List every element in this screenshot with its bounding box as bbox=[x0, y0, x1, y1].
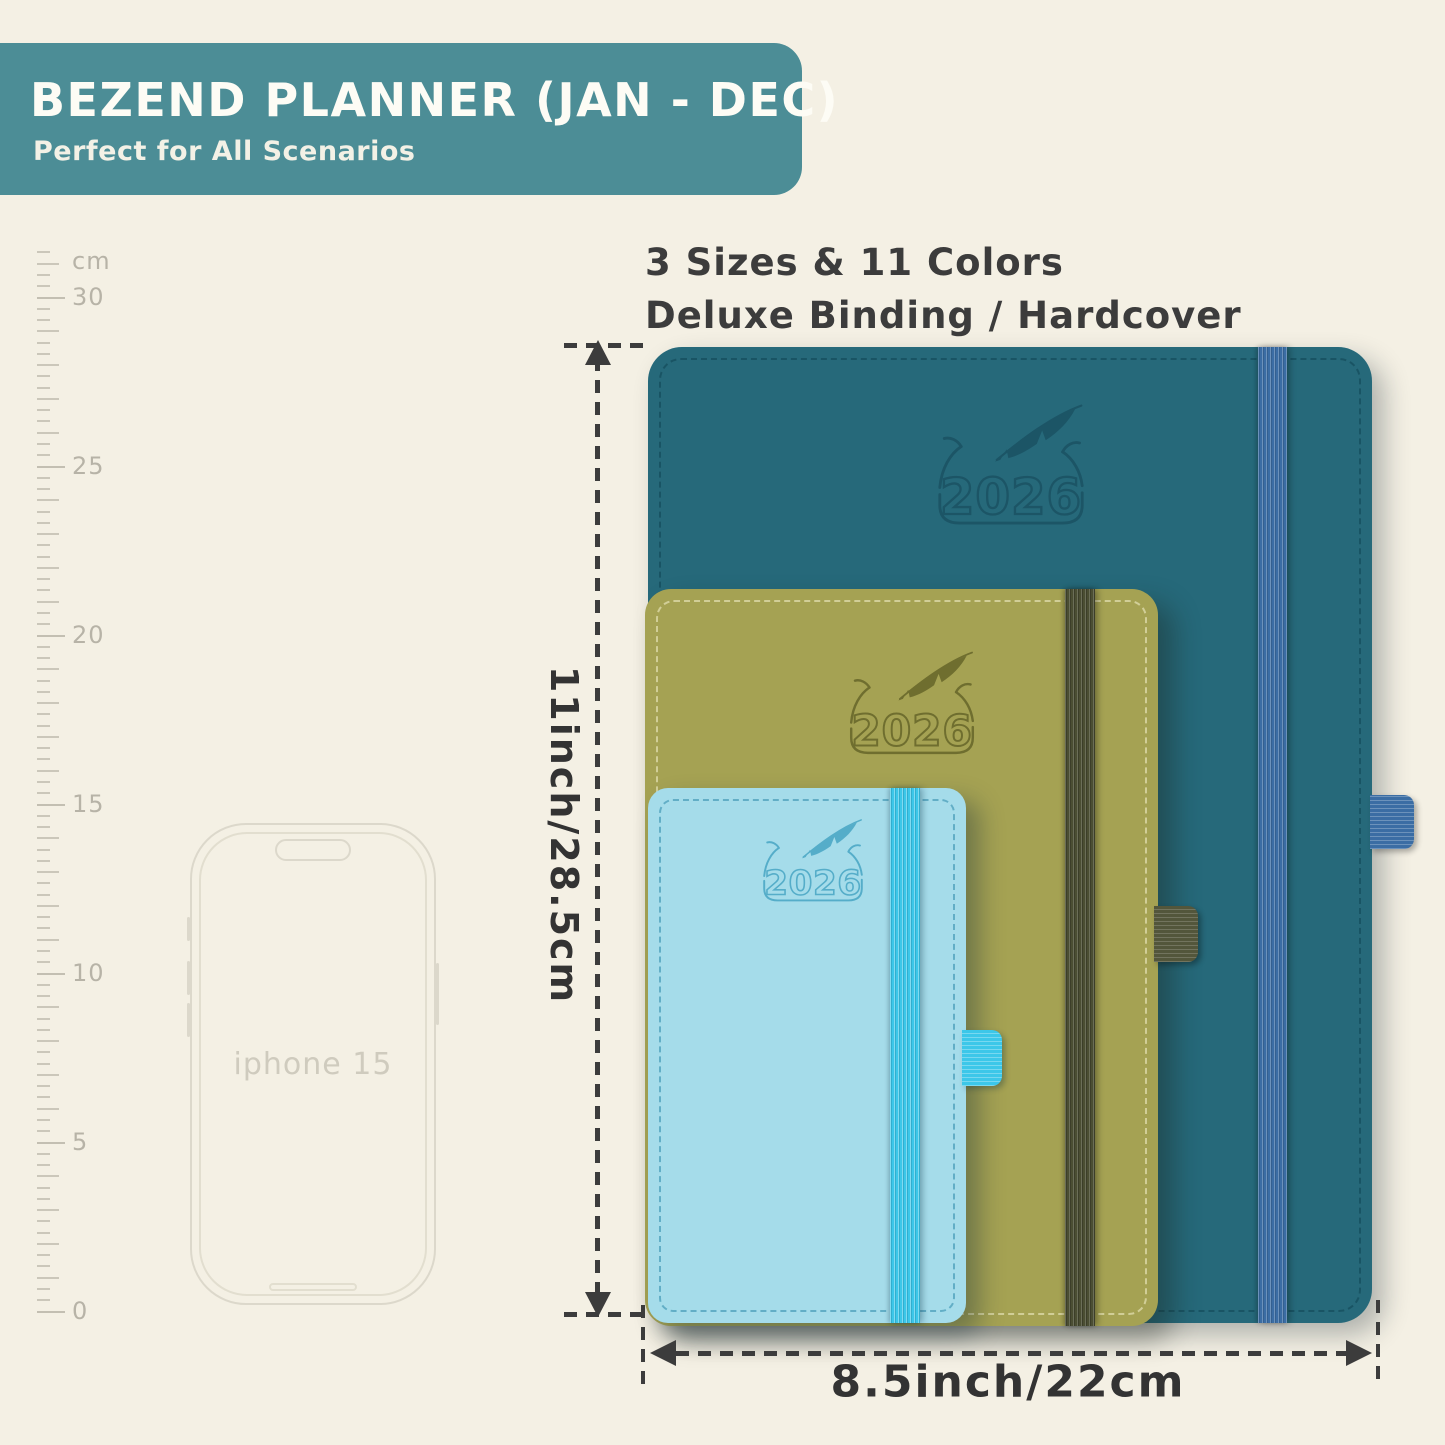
ruler-tick bbox=[37, 544, 50, 546]
ruler-tick bbox=[37, 274, 50, 276]
pen-loop bbox=[1154, 906, 1198, 962]
ruler-tick bbox=[37, 1018, 50, 1020]
year-text: 2026 bbox=[940, 468, 1082, 526]
ruler-tick bbox=[37, 263, 59, 265]
height-dimension-label: 11inch/28.5cm bbox=[542, 666, 586, 1004]
year-text: 2026 bbox=[764, 863, 862, 903]
ruler-tick bbox=[37, 432, 59, 434]
width-dimension-line bbox=[676, 1351, 1348, 1356]
ruler-tick bbox=[37, 950, 50, 952]
ruler-tick bbox=[37, 905, 59, 907]
ruler-tick bbox=[37, 567, 59, 569]
page-subtitle: Perfect for All Scenarios bbox=[33, 136, 416, 167]
elastic-band bbox=[1258, 347, 1287, 1323]
ruler-tick bbox=[37, 916, 50, 918]
ruler-label-0: 0 bbox=[72, 1297, 88, 1325]
ruler-tick bbox=[37, 387, 50, 389]
feature-line-sizes: 3 Sizes & 11 Colors bbox=[645, 241, 1064, 284]
ruler-tick bbox=[37, 488, 50, 490]
ruler-tick bbox=[37, 894, 50, 896]
ruler-tick bbox=[37, 691, 50, 693]
ruler-tick bbox=[37, 1288, 50, 1290]
ruler-tick bbox=[37, 1209, 59, 1211]
ruler-tick bbox=[37, 939, 59, 941]
ruler-tick bbox=[37, 702, 59, 704]
ruler-tick bbox=[37, 1220, 50, 1222]
ruler-tick bbox=[37, 409, 50, 411]
ruler-tick bbox=[37, 713, 50, 715]
year-text: 2026 bbox=[851, 706, 972, 756]
ruler-label-15: 15 bbox=[72, 790, 105, 818]
ruler-tick bbox=[37, 420, 50, 422]
ruler-unit-label: cm bbox=[72, 247, 111, 275]
ruler-tick bbox=[37, 556, 50, 558]
ruler-tick bbox=[37, 375, 50, 377]
ruler-tick bbox=[37, 1130, 50, 1132]
ruler-label-30: 30 bbox=[72, 283, 105, 311]
ruler-label-5: 5 bbox=[72, 1128, 88, 1156]
ruler-tick bbox=[37, 792, 50, 794]
iphone-label: iphone 15 bbox=[192, 1047, 434, 1082]
ruler-tick bbox=[37, 1299, 50, 1301]
ruler-tick bbox=[37, 285, 50, 287]
iphone-power-button bbox=[436, 963, 439, 1025]
ruler-tick bbox=[37, 736, 59, 738]
elastic-band bbox=[1065, 589, 1095, 1326]
ruler-tick bbox=[37, 882, 50, 884]
height-dimension-connector-bottom bbox=[564, 1312, 648, 1317]
ruler-tick bbox=[37, 330, 59, 332]
ruler-tick bbox=[37, 308, 50, 310]
ruler-tick bbox=[37, 860, 50, 862]
ruler-tick bbox=[37, 1153, 50, 1155]
iphone-outline: iphone 15 bbox=[190, 823, 436, 1305]
elastic-band bbox=[890, 788, 920, 1323]
pen-loop bbox=[962, 1030, 1002, 1086]
ruler-tick bbox=[37, 1006, 59, 1008]
ruler-tick bbox=[37, 1277, 59, 1279]
ruler-tick bbox=[37, 1175, 59, 1177]
ruler-tick bbox=[37, 758, 50, 760]
ruler-tick bbox=[37, 251, 50, 253]
ruler-tick bbox=[37, 1119, 50, 1121]
ruler-tick bbox=[37, 319, 50, 321]
ruler-tick bbox=[37, 747, 50, 749]
height-dimension-connector-top bbox=[564, 343, 648, 348]
ruler-tick bbox=[37, 1040, 59, 1042]
ruler-tick bbox=[37, 646, 50, 648]
year-logo-lightblue: 2026 bbox=[752, 816, 874, 908]
ruler-tick bbox=[37, 984, 50, 986]
ruler-tick bbox=[37, 589, 50, 591]
width-dimension-tick-right bbox=[1376, 1300, 1380, 1386]
ruler-tick bbox=[37, 826, 50, 828]
feature-line-binding: Deluxe Binding / Hardcover bbox=[645, 294, 1242, 337]
width-dimension-tick-left bbox=[641, 1305, 645, 1385]
ruler-tick bbox=[37, 668, 59, 670]
ruler-tick bbox=[37, 973, 65, 975]
ruler-tick bbox=[37, 1051, 50, 1053]
ruler-tick bbox=[37, 995, 50, 997]
ruler-tick bbox=[37, 353, 50, 355]
iphone-volume-up-button bbox=[187, 961, 190, 995]
ruler-tick bbox=[37, 837, 59, 839]
ruler-tick bbox=[37, 1085, 50, 1087]
ruler-tick bbox=[37, 815, 50, 817]
product-infographic: BEZEND PLANNER (JAN - DEC) Perfect for A… bbox=[0, 0, 1445, 1445]
arrow-left-icon bbox=[650, 1340, 676, 1366]
ruler-tick bbox=[37, 1108, 59, 1110]
ruler-label-20: 20 bbox=[72, 621, 105, 649]
ruler-tick bbox=[37, 1232, 50, 1234]
height-dimension-line bbox=[595, 358, 600, 1303]
ruler-tick bbox=[37, 1243, 59, 1245]
ruler-tick bbox=[37, 533, 59, 535]
year-logo-teal: 2026 bbox=[922, 400, 1100, 534]
ruler-tick bbox=[37, 680, 50, 682]
year-logo-olive: 2026 bbox=[836, 648, 988, 762]
ruler-tick bbox=[37, 1164, 50, 1166]
ruler-tick bbox=[37, 454, 50, 456]
pen-loop bbox=[1370, 795, 1414, 849]
ruler-label-25: 25 bbox=[72, 452, 105, 480]
ruler-tick bbox=[37, 297, 65, 299]
ruler-tick bbox=[37, 398, 59, 400]
ruler-tick bbox=[37, 499, 59, 501]
ruler-tick bbox=[37, 1198, 50, 1200]
ruler-tick bbox=[37, 623, 50, 625]
width-dimension-label: 8.5inch/22cm bbox=[831, 1357, 1186, 1408]
ruler-tick bbox=[37, 522, 50, 524]
ruler-tick bbox=[37, 612, 50, 614]
ruler-tick bbox=[37, 1265, 50, 1267]
ruler-tick bbox=[37, 511, 50, 513]
ruler-tick bbox=[37, 1142, 65, 1144]
ruler-tick bbox=[37, 725, 50, 727]
ruler-tick bbox=[37, 804, 65, 806]
ruler-tick bbox=[37, 1096, 50, 1098]
ruler-tick bbox=[37, 477, 50, 479]
ruler-tick bbox=[37, 961, 50, 963]
ruler-tick bbox=[37, 1063, 50, 1065]
ruler-tick bbox=[37, 849, 50, 851]
ruler-tick bbox=[37, 466, 65, 468]
ruler-tick bbox=[37, 781, 50, 783]
ruler-tick bbox=[37, 1311, 65, 1313]
ruler-tick bbox=[37, 871, 59, 873]
ruler-tick bbox=[37, 578, 50, 580]
ruler-tick bbox=[37, 601, 59, 603]
ruler-tick bbox=[37, 657, 50, 659]
ruler-tick bbox=[37, 770, 59, 772]
iphone-volume-down-button bbox=[187, 1003, 190, 1037]
ruler-tick bbox=[37, 635, 65, 637]
ruler-tick bbox=[37, 1254, 50, 1256]
ruler-tick bbox=[37, 443, 50, 445]
ruler-tick bbox=[37, 1074, 59, 1076]
header-banner: BEZEND PLANNER (JAN - DEC) Perfect for A… bbox=[0, 43, 802, 195]
ruler-tick bbox=[37, 927, 50, 929]
iphone-mute-switch bbox=[187, 917, 190, 941]
ruler-tick bbox=[37, 364, 59, 366]
ruler-label-10: 10 bbox=[72, 959, 105, 987]
arrow-right-icon bbox=[1346, 1340, 1372, 1366]
iphone-dynamic-island bbox=[275, 839, 351, 861]
ruler-tick bbox=[37, 1029, 50, 1031]
ruler-tick bbox=[37, 342, 50, 344]
iphone-bottom-port bbox=[269, 1283, 357, 1291]
ruler-tick bbox=[37, 1187, 50, 1189]
page-title: BEZEND PLANNER (JAN - DEC) bbox=[30, 73, 839, 127]
